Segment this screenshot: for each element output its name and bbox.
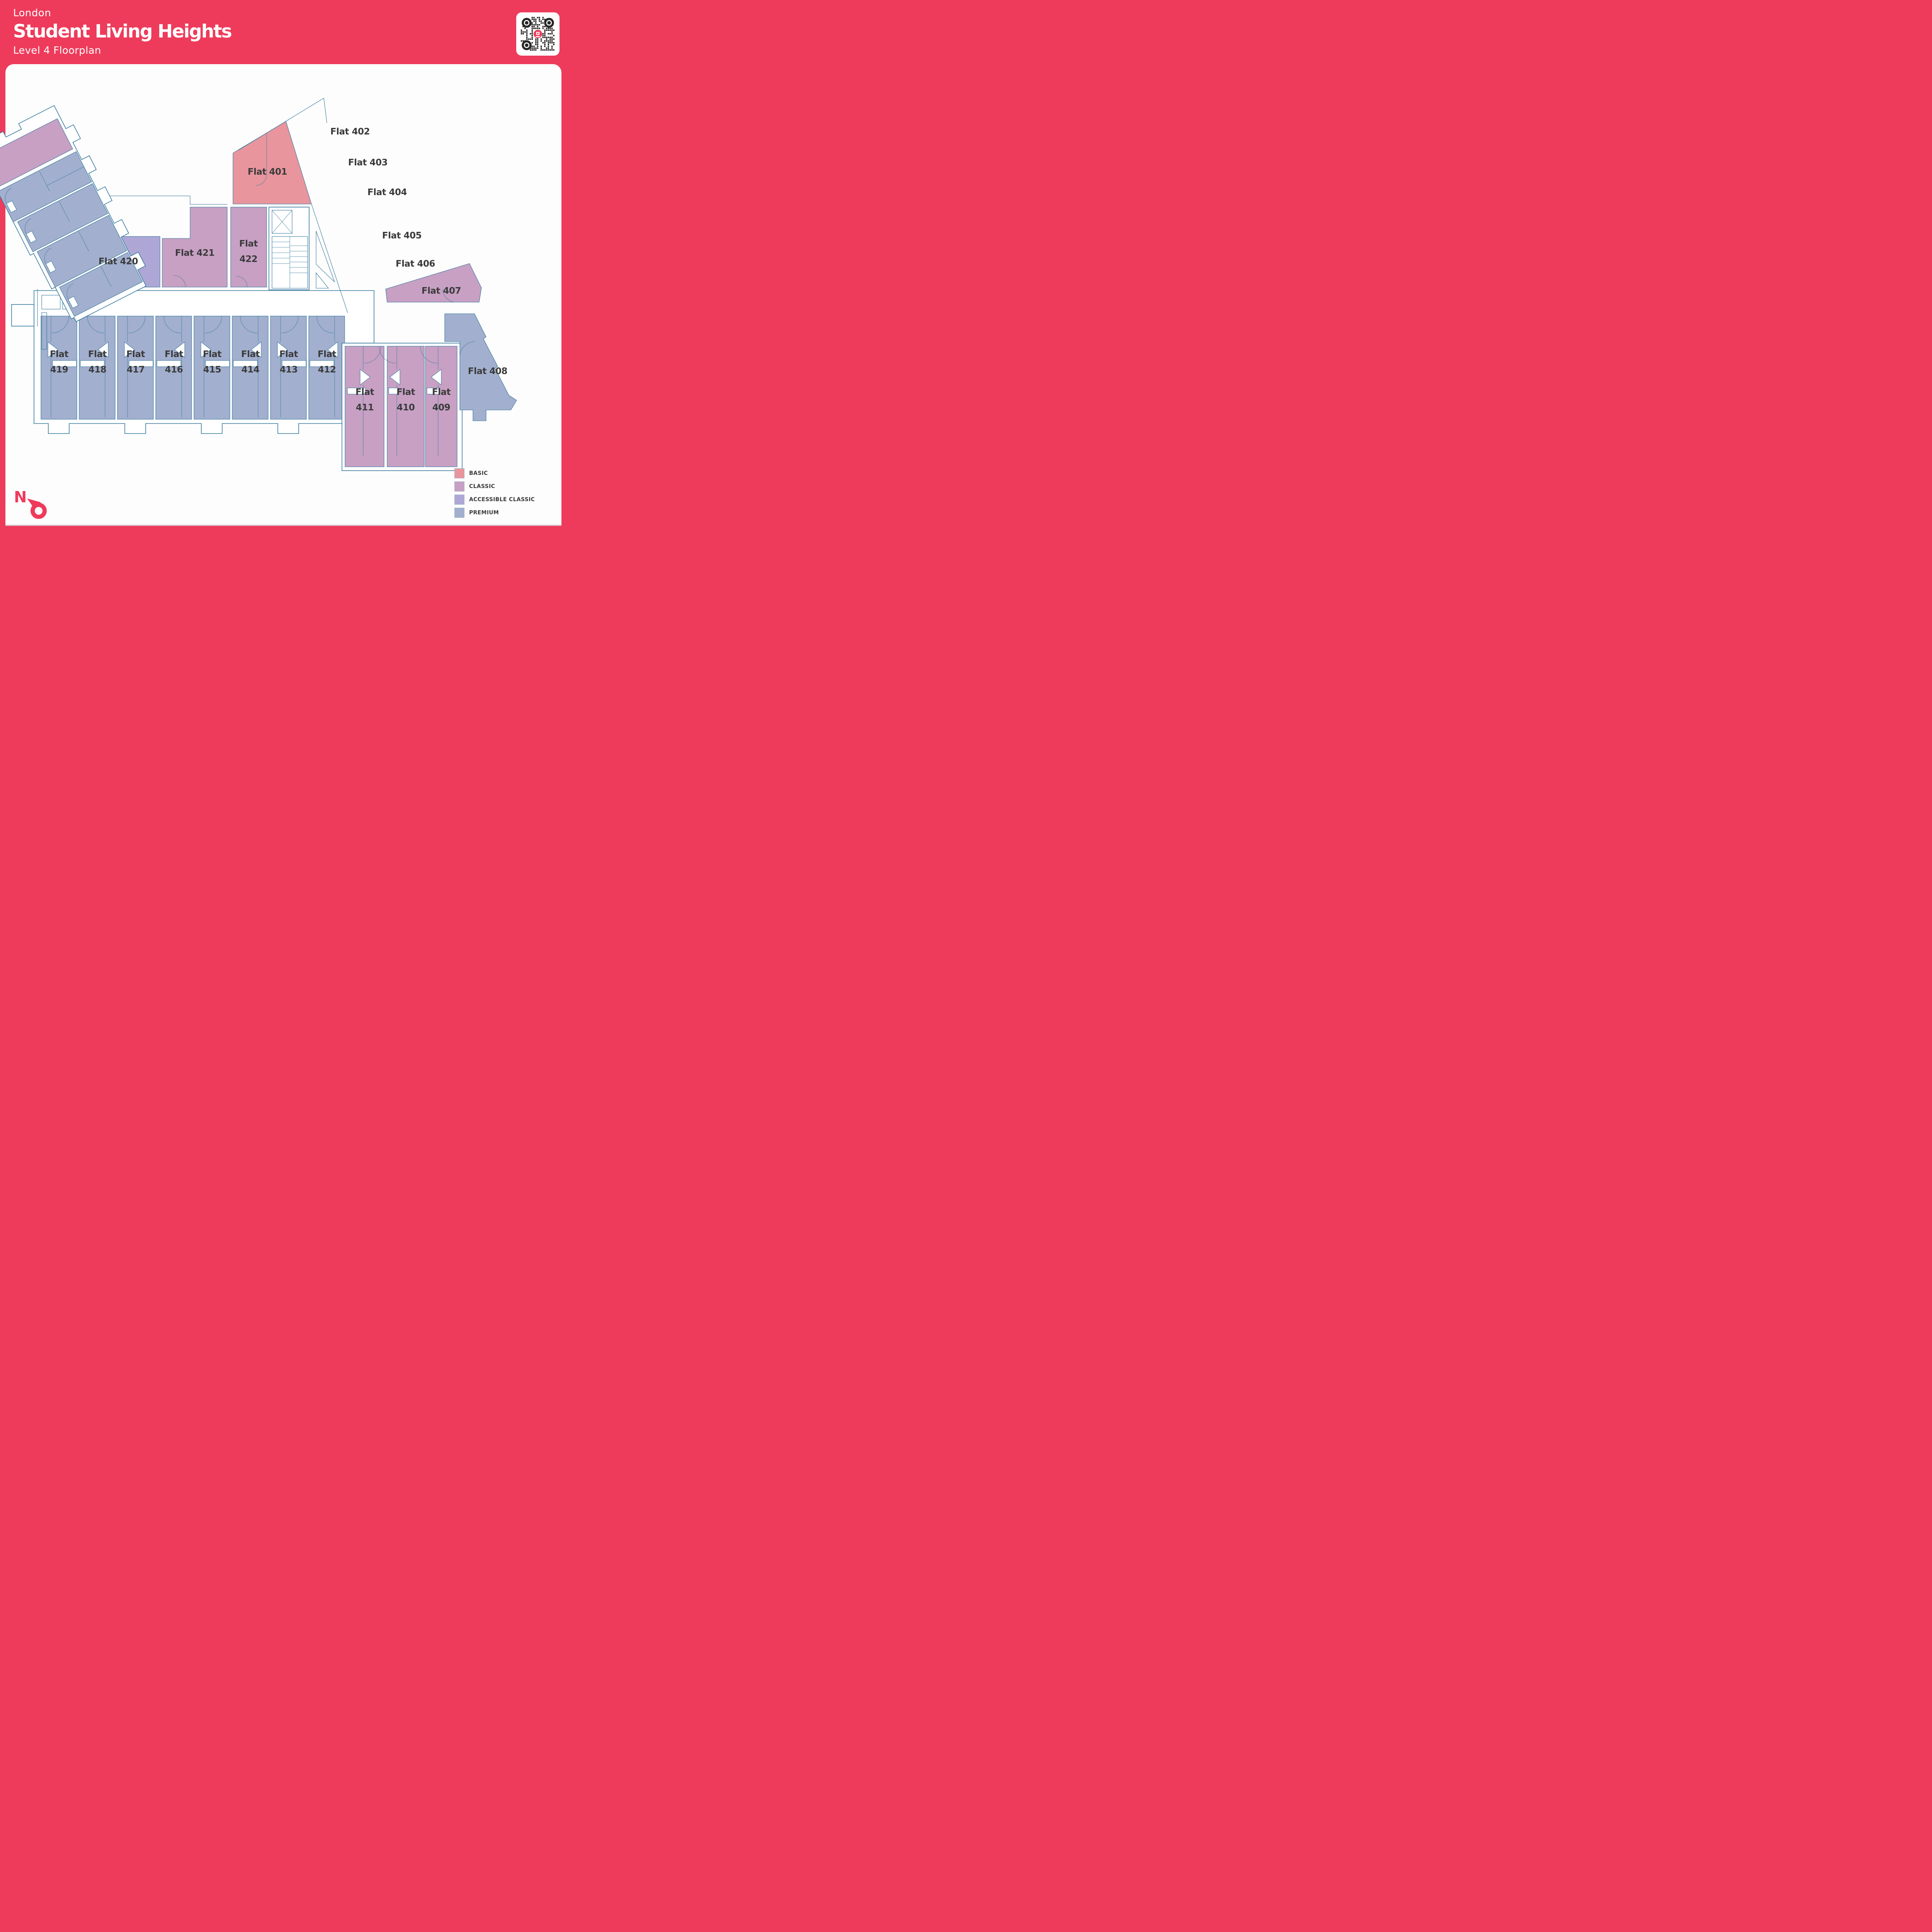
flat-405-label: Flat 405 xyxy=(382,231,422,241)
flat-406-label: Flat 406 xyxy=(396,259,435,269)
flat-401-label: Flat 401 xyxy=(248,167,287,177)
stair-core-outline xyxy=(269,207,309,290)
legend-label-classic: CLASSIC xyxy=(469,483,495,490)
duct-triangle-2 xyxy=(316,273,328,288)
legend-swatch-classic xyxy=(454,481,464,492)
flat-407-area[interactable] xyxy=(386,264,481,302)
qr-code-graphic xyxy=(516,12,560,56)
legend-label-basic: BASIC xyxy=(469,470,488,476)
flat-407-label: Flat 407 xyxy=(422,286,461,296)
floorplan-canvas: N Flat 401Flat 402Flat 403Flat 404Flat 4… xyxy=(0,0,567,530)
legend-item-basic: BASIC xyxy=(454,468,535,478)
flat-404-label: Flat 404 xyxy=(367,187,407,197)
legend-swatch-accessible-classic xyxy=(454,495,464,505)
header: London Student Living Heights Level 4 Fl… xyxy=(13,8,231,57)
compass: N xyxy=(14,488,45,517)
west-balcony xyxy=(12,304,34,326)
flat-408-label: Flat 408 xyxy=(468,366,507,376)
legend-label-premium: PREMIUM xyxy=(469,510,499,516)
flat-420-label: Flat 420 xyxy=(99,257,138,267)
page-subtitle: Level 4 Floorplan xyxy=(13,45,231,57)
compass-ring xyxy=(33,505,45,517)
duct-triangle-1 xyxy=(316,231,335,282)
flat-421-label: Flat 421 xyxy=(175,248,214,258)
compass-north-label: N xyxy=(14,488,27,506)
legend-item-premium: PREMIUM xyxy=(454,508,535,518)
legend-item-classic: CLASSIC xyxy=(454,481,535,492)
legend-label-accessible-classic: ACCESSIBLE CLASSIC xyxy=(469,497,535,503)
legend-swatch-basic xyxy=(454,468,464,478)
flat-403-label: Flat 403 xyxy=(348,158,388,168)
city-label: London xyxy=(13,8,231,19)
qr-code xyxy=(516,12,560,56)
legend-item-accessible-classic: ACCESSIBLE CLASSIC xyxy=(454,495,535,505)
legend: BASIC CLASSIC ACCESSIBLE CLASSIC PREMIUM xyxy=(454,468,535,521)
legend-swatch-premium xyxy=(454,508,464,518)
page-title: Student Living Heights xyxy=(13,21,231,43)
flat-402-label: Flat 402 xyxy=(330,127,370,137)
flat-401-area[interactable] xyxy=(233,121,311,204)
flat-421-area[interactable] xyxy=(162,207,227,287)
qr-center-logo xyxy=(534,30,542,38)
